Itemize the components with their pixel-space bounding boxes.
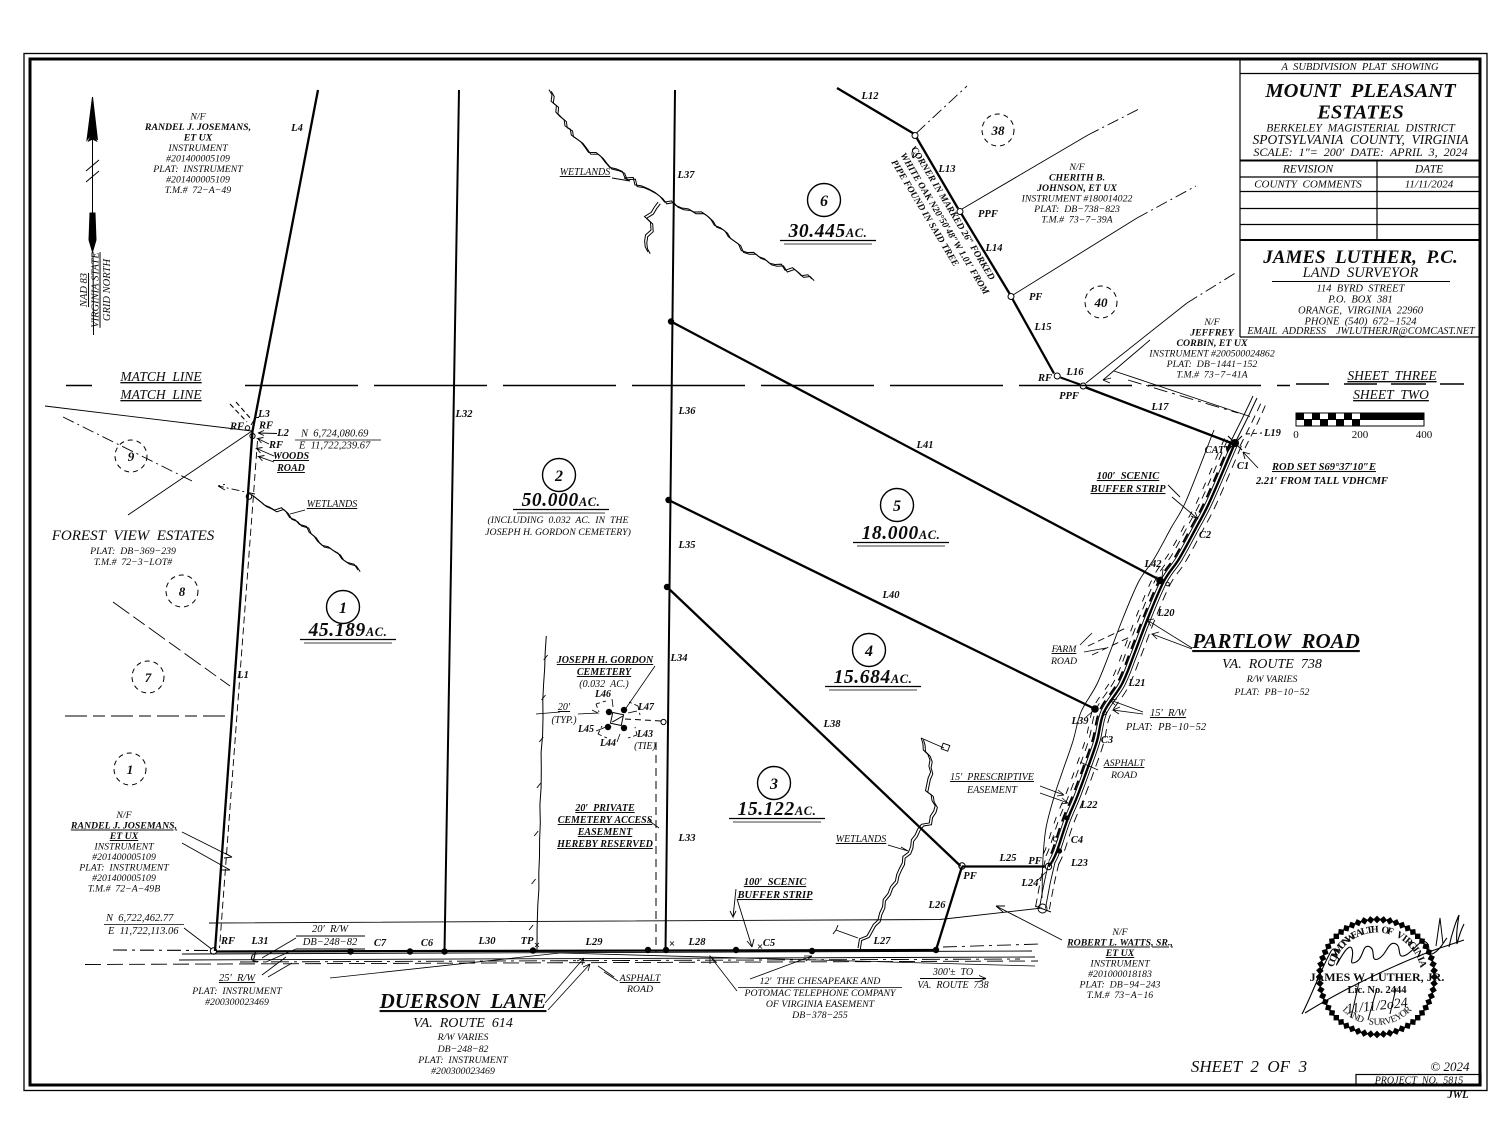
svg-text:L31: L31 <box>251 936 269 947</box>
svg-text:E 11,722,113.06: E 11,722,113.06 <box>107 926 179 937</box>
svg-text:MOUNT PLEASANT: MOUNT PLEASANT <box>1264 80 1457 102</box>
svg-text:ORANGE, VIRGINIA 22960: ORANGE, VIRGINIA 22960 <box>1298 306 1424 317</box>
svg-text:R/W VARIES: R/W VARIES <box>437 1032 489 1043</box>
svg-text:N 6,722,462.77: N 6,722,462.77 <box>105 913 174 924</box>
svg-text:400: 400 <box>1416 429 1433 441</box>
svg-text:WETLANDS: WETLANDS <box>307 499 358 510</box>
svg-text:#201400005109: #201400005109 <box>166 175 230 186</box>
svg-text:T.M.# 72−A−49: T.M.# 72−A−49 <box>165 185 231 196</box>
svg-text:C6: C6 <box>421 938 434 949</box>
svg-text:ASPHALT: ASPHALT <box>1103 758 1146 769</box>
svg-text:RF: RF <box>1037 373 1052 384</box>
svg-text:L13: L13 <box>938 164 956 175</box>
svg-text:PLAT: DB−94−243: PLAT: DB−94−243 <box>1079 980 1161 991</box>
svg-text:T.M.# 73−7−39A: T.M.# 73−7−39A <box>1041 215 1113 226</box>
svg-text:L29: L29 <box>585 937 604 948</box>
svg-text:20′ R/W: 20′ R/W <box>312 924 349 935</box>
svg-text:VIRGINIA STATE: VIRGINIA STATE <box>91 252 102 328</box>
svg-text:ROD SET S69°37′10″E: ROD SET S69°37′10″E <box>1271 462 1376 473</box>
svg-text:L14: L14 <box>985 243 1003 254</box>
svg-text:RF: RF <box>268 440 283 451</box>
svg-text:ASPHALT: ASPHALT <box>619 973 662 984</box>
svg-text:N/F: N/F <box>189 112 206 123</box>
svg-text:L41: L41 <box>916 440 934 451</box>
svg-text:0: 0 <box>1293 429 1299 441</box>
svg-text:MATCH LINE: MATCH LINE <box>119 369 202 384</box>
svg-text:DB−248−82: DB−248−82 <box>437 1044 489 1055</box>
svg-text:INSTRUMENT #200500024862: INSTRUMENT #200500024862 <box>1148 349 1275 360</box>
svg-text:RF: RF <box>258 421 273 432</box>
svg-text:INSTRUMENT #180014022: INSTRUMENT #180014022 <box>1021 194 1133 205</box>
svg-text:7: 7 <box>145 670 152 685</box>
svg-text:JEFFREY: JEFFREY <box>1189 328 1235 339</box>
svg-text:MATCH LINE: MATCH LINE <box>119 387 202 402</box>
svg-text:PLAT: PB−10−52: PLAT: PB−10−52 <box>1125 722 1207 733</box>
svg-text:L30: L30 <box>478 936 497 947</box>
svg-text:EMAIL ADDRESS JWLUTHERJR@C: EMAIL ADDRESS JWLUTHERJR@COMCAST.NET <box>1246 326 1476 337</box>
svg-text:JOSEPH H. GORDON CEMETERY): JOSEPH H. GORDON CEMETERY) <box>485 527 631 538</box>
svg-text:(INCLUDING 0.032 AC. IN TH: (INCLUDING 0.032 AC. IN THE <box>488 515 629 526</box>
svg-text:FARM: FARM <box>1051 644 1078 655</box>
svg-text:1: 1 <box>127 762 134 777</box>
svg-text:N/F: N/F <box>115 810 132 821</box>
svg-text:RF: RF <box>229 422 244 433</box>
svg-text:L1: L1 <box>236 670 249 681</box>
svg-text:N/F: N/F <box>1111 927 1128 938</box>
svg-text:CATV: CATV <box>1205 445 1233 456</box>
svg-text:PF: PF <box>963 871 976 882</box>
svg-text:N/F: N/F <box>1203 317 1220 328</box>
svg-text:PARTLOW ROAD: PARTLOW ROAD <box>1191 629 1360 653</box>
svg-text:ROAD: ROAD <box>276 463 305 474</box>
svg-text:POTOMAC TELEPHONE COMPANY: POTOMAC TELEPHONE COMPANY <box>744 988 898 999</box>
svg-text:12′ THE CHESAPEAKE AND: 12′ THE CHESAPEAKE AND <box>760 976 881 987</box>
svg-text:C4: C4 <box>1071 835 1083 846</box>
svg-text:(TYP.): (TYP.) <box>551 715 577 726</box>
svg-text:SHEET THREE: SHEET THREE <box>1347 368 1437 383</box>
svg-text:PF: PF <box>1028 856 1041 867</box>
svg-text:4: 4 <box>864 643 873 660</box>
svg-text:BUFFER STRIP: BUFFER STRIP <box>1090 484 1167 495</box>
svg-text:EASEMENT: EASEMENT <box>966 785 1018 796</box>
svg-text:CHERITH B.: CHERITH B. <box>1049 173 1105 184</box>
svg-text:REVISION: REVISION <box>1282 164 1335 176</box>
svg-text:L37: L37 <box>677 170 696 181</box>
svg-text:L27: L27 <box>873 936 892 947</box>
svg-text:C5: C5 <box>763 938 775 949</box>
svg-text:9: 9 <box>128 449 135 464</box>
svg-text:ROAD: ROAD <box>1110 770 1137 781</box>
svg-text:DATE: DATE <box>1414 164 1443 176</box>
svg-text:VA. ROUTE 738: VA. ROUTE 738 <box>1222 657 1322 672</box>
svg-text:OF VIRGINIA EASEMENT: OF VIRGINIA EASEMENT <box>766 999 876 1010</box>
svg-text:8: 8 <box>179 584 186 599</box>
svg-text:E 11,722,239.67: E 11,722,239.67 <box>298 441 371 452</box>
svg-text:L44: L44 <box>599 738 616 749</box>
svg-text:WETLANDS: WETLANDS <box>836 834 887 845</box>
svg-text:NAD 83: NAD 83 <box>79 273 90 308</box>
svg-text:JOSEPH H. GORDON: JOSEPH H. GORDON <box>556 655 654 666</box>
svg-text:C2: C2 <box>1199 530 1212 541</box>
svg-text:ET UX: ET UX <box>183 133 213 144</box>
svg-text:PLAT: INSTRUMENT: PLAT: INSTRUMENT <box>191 986 283 997</box>
svg-text:INSTRUMENT: INSTRUMENT <box>93 842 155 853</box>
svg-text:#201000018183: #201000018183 <box>1088 969 1152 980</box>
svg-text:TP: TP <box>521 936 534 947</box>
svg-text:25′ R/W: 25′ R/W <box>219 973 256 984</box>
svg-text:PLAT: DB−738−823: PLAT: DB−738−823 <box>1033 204 1120 215</box>
svg-text:L36: L36 <box>678 406 697 417</box>
svg-text:INSTRUMENT: INSTRUMENT <box>167 143 229 154</box>
svg-text:PLAT: DB−369−239: PLAT: DB−369−239 <box>89 546 176 557</box>
svg-text:L22: L22 <box>1080 800 1099 811</box>
svg-text:20′: 20′ <box>558 702 571 713</box>
svg-text:N/F: N/F <box>1068 162 1085 173</box>
svg-text:L45: L45 <box>577 724 594 735</box>
svg-text:L16: L16 <box>1066 367 1085 378</box>
svg-text:WETLANDS: WETLANDS <box>560 167 611 178</box>
svg-text:HEREBY RESERVED: HEREBY RESERVED <box>556 839 653 850</box>
svg-text:FOREST VIEW ESTATES: FOREST VIEW ESTATES <box>51 528 215 544</box>
svg-text:20′ PRIVATE: 20′ PRIVATE <box>574 803 635 814</box>
svg-text:GRID NORTH: GRID NORTH <box>102 258 113 322</box>
svg-text:T.M.# 72−3−LOT#: T.M.# 72−3−LOT# <box>94 557 173 568</box>
svg-text:RANDEL J. JOSEMANS,: RANDEL J. JOSEMANS, <box>70 821 177 832</box>
svg-text:L42: L42 <box>1144 559 1163 570</box>
svg-text:EASEMENT: EASEMENT <box>577 827 633 838</box>
svg-text:L3: L3 <box>257 409 270 420</box>
svg-text:ET UX: ET UX <box>1105 948 1135 959</box>
svg-text:PLAT: INSTRUMENT: PLAT: INSTRUMENT <box>152 164 244 175</box>
svg-text:2: 2 <box>554 468 563 485</box>
svg-text:T.M.# 72−A−49B: T.M.# 72−A−49B <box>88 884 160 895</box>
svg-text:R/W VARIES: R/W VARIES <box>1246 674 1298 685</box>
svg-text:L2: L2 <box>276 428 289 439</box>
svg-text:T.M.# 73−A−16: T.M.# 73−A−16 <box>1087 990 1153 1001</box>
svg-text:15′ PRESCRIPTIVE: 15′ PRESCRIPTIVE <box>950 772 1034 783</box>
svg-text:COUNTY COMMENTS: COUNTY COMMENTS <box>1254 179 1362 191</box>
svg-text:100′ SCENIC: 100′ SCENIC <box>744 877 807 888</box>
svg-text:100′ SCENIC: 100′ SCENIC <box>1097 471 1160 482</box>
svg-text:5: 5 <box>893 498 901 515</box>
svg-text:40: 40 <box>1094 295 1109 310</box>
svg-text:PLAT: INSTRUMENT: PLAT: INSTRUMENT <box>417 1055 509 1066</box>
svg-text:L46: L46 <box>594 689 611 700</box>
svg-text:2.21′ FROM TALL VDHCMF: 2.21′ FROM TALL VDHCMF <box>1255 476 1388 487</box>
svg-text:C7: C7 <box>374 938 387 949</box>
svg-text:WOODS: WOODS <box>273 451 310 462</box>
svg-text:L23: L23 <box>1070 858 1088 869</box>
svg-text:L39: L39 <box>1071 716 1090 727</box>
svg-text:CEMETERY ACCESS: CEMETERY ACCESS <box>558 815 653 826</box>
svg-text:PROJECT NO. 5815: PROJECT NO. 5815 <box>1374 1076 1464 1087</box>
svg-text:L26: L26 <box>928 900 947 911</box>
svg-text:© 2024: © 2024 <box>1430 1059 1470 1074</box>
svg-text:L43: L43 <box>636 729 653 740</box>
svg-text:L15: L15 <box>1034 322 1052 333</box>
svg-text:L12: L12 <box>861 91 880 102</box>
svg-text:VA. ROUTE 614: VA. ROUTE 614 <box>413 1016 513 1031</box>
svg-text:L40: L40 <box>882 590 901 601</box>
svg-text:ROAD: ROAD <box>626 984 653 995</box>
svg-text:#201400005109: #201400005109 <box>92 852 156 863</box>
svg-text:DB−248−82: DB−248−82 <box>302 937 358 948</box>
svg-text:L32: L32 <box>455 409 474 420</box>
svg-text:JWL: JWL <box>1447 1090 1469 1101</box>
svg-text:L47: L47 <box>637 702 655 713</box>
svg-text:L38: L38 <box>823 719 842 730</box>
svg-text:L17: L17 <box>1151 402 1170 413</box>
svg-text:RF: RF <box>220 936 235 947</box>
svg-text:ESTATES: ESTATES <box>1316 102 1404 124</box>
svg-text:L4: L4 <box>290 123 303 134</box>
svg-text:C1: C1 <box>1237 461 1249 472</box>
svg-text:L20: L20 <box>1157 608 1176 619</box>
svg-text:#200300023469: #200300023469 <box>431 1066 495 1077</box>
svg-text:L33: L33 <box>678 833 696 844</box>
svg-text:CORBIN, ET UX: CORBIN, ET UX <box>1176 338 1248 349</box>
svg-text:SCALE: 1″= 200′ DATE: APRI: SCALE: 1″= 200′ DATE: APRIL 3, 2024 <box>1253 145 1467 159</box>
svg-text:#200300023469: #200300023469 <box>205 997 269 1008</box>
svg-text:℄: ℄ <box>250 950 259 965</box>
svg-text:200: 200 <box>1352 429 1369 441</box>
svg-text:BUFFER STRIP: BUFFER STRIP <box>737 890 814 901</box>
svg-text:3: 3 <box>769 776 778 793</box>
svg-text:L28: L28 <box>688 937 707 948</box>
svg-text:300′± TO: 300′± TO <box>932 967 973 978</box>
svg-text:1: 1 <box>339 600 347 617</box>
svg-text:JAMES W. LUTHER, JR.: JAMES W. LUTHER, JR. <box>1310 970 1445 984</box>
svg-text:L35: L35 <box>678 540 696 551</box>
svg-text:C3: C3 <box>1101 735 1113 746</box>
svg-text:A SUBDIVISION PLAT SHOWING: A SUBDIVISION PLAT SHOWING <box>1280 62 1439 73</box>
svg-text:LAND SURVEYOR: LAND SURVEYOR <box>1302 265 1419 281</box>
svg-text:11/11/2024: 11/11/2024 <box>1405 179 1454 191</box>
svg-text:P.O. BOX 381: P.O. BOX 381 <box>1327 295 1393 306</box>
svg-text:114 BYRD STREET: 114 BYRD STREET <box>1317 284 1406 295</box>
svg-text:#201400005109: #201400005109 <box>166 154 230 165</box>
svg-text:ROBERT L. WATTS, SR.,: ROBERT L. WATTS, SR., <box>1066 938 1173 949</box>
svg-text:L34: L34 <box>670 653 688 664</box>
svg-text:ROAD: ROAD <box>1050 656 1077 667</box>
svg-text:SHEET TWO: SHEET TWO <box>1353 387 1429 402</box>
svg-text:L24: L24 <box>1021 878 1039 889</box>
svg-text:L25: L25 <box>999 853 1017 864</box>
svg-text:CEMETERY: CEMETERY <box>577 667 632 678</box>
svg-text:15′ R/W: 15′ R/W <box>1150 708 1187 719</box>
svg-text:N 6,724,080.69: N 6,724,080.69 <box>300 429 369 440</box>
svg-text:PPF: PPF <box>978 209 998 220</box>
svg-text:RANDEL J. JOSEMANS,: RANDEL J. JOSEMANS, <box>144 122 251 133</box>
svg-text:6: 6 <box>820 193 828 210</box>
svg-text:PLAT: DB−1441−152: PLAT: DB−1441−152 <box>1166 359 1258 370</box>
svg-text:L19: L19 <box>1263 428 1282 439</box>
svg-text:DUERSON LANE: DUERSON LANE <box>379 989 547 1013</box>
svg-text:#201400005109: #201400005109 <box>92 873 156 884</box>
svg-text:PF: PF <box>1029 292 1042 303</box>
svg-text:L21: L21 <box>1128 678 1146 689</box>
svg-text:T.M.# 73−7−41A: T.M.# 73−7−41A <box>1176 370 1248 381</box>
svg-text:INSTRUMENT: INSTRUMENT <box>1089 959 1151 970</box>
svg-text:ET UX: ET UX <box>109 831 139 842</box>
svg-text:VA. ROUTE 738: VA. ROUTE 738 <box>917 980 988 991</box>
svg-text:38: 38 <box>991 123 1006 138</box>
svg-text:PLAT: PB−10−52: PLAT: PB−10−52 <box>1234 687 1310 698</box>
svg-text:H: H <box>1371 924 1380 935</box>
svg-text:DB−378−255: DB−378−255 <box>791 1010 848 1021</box>
svg-text:SHEET 2 OF 3: SHEET 2 OF 3 <box>1191 1057 1307 1076</box>
svg-text:PLAT: INSTRUMENT: PLAT: INSTRUMENT <box>78 863 170 874</box>
svg-text:(TIE): (TIE) <box>634 741 656 752</box>
svg-text:PPF: PPF <box>1059 391 1079 402</box>
svg-text:JOHNSON, ET UX: JOHNSON, ET UX <box>1036 183 1117 194</box>
